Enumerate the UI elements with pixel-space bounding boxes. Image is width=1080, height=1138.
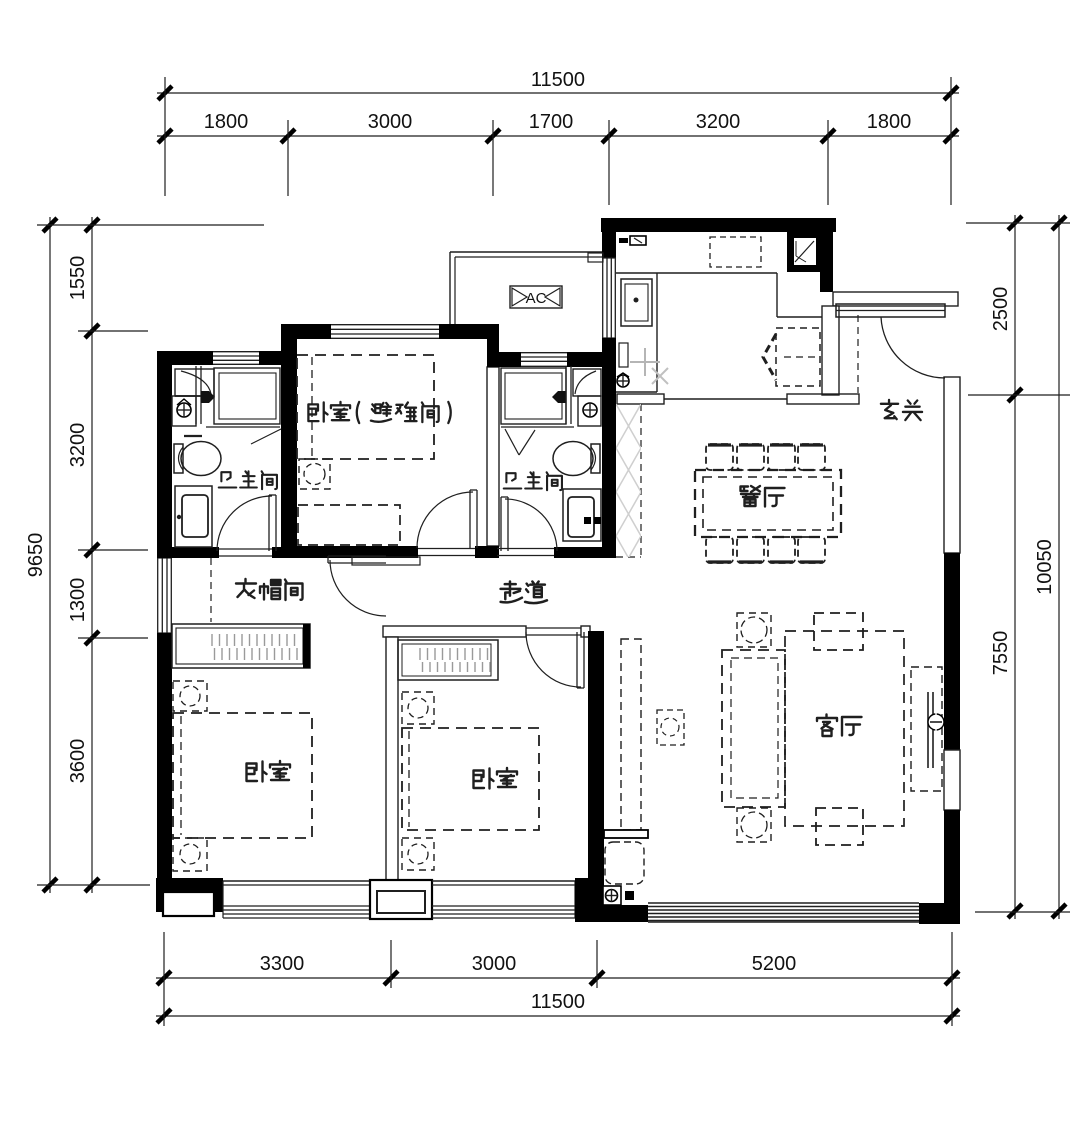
svg-text:3200: 3200 — [67, 423, 89, 468]
svg-text:5200: 5200 — [752, 953, 797, 975]
svg-text:3300: 3300 — [260, 953, 305, 975]
svg-text:11500: 11500 — [531, 991, 585, 1013]
svg-text:3000: 3000 — [472, 953, 517, 975]
svg-text:3000: 3000 — [368, 111, 413, 133]
svg-text:1700: 1700 — [529, 111, 574, 133]
svg-text:AC: AC — [526, 290, 547, 307]
svg-text:10050: 10050 — [1034, 539, 1056, 595]
svg-text:3600: 3600 — [67, 739, 89, 784]
svg-text:1550: 1550 — [67, 256, 89, 301]
svg-text:1800: 1800 — [867, 111, 912, 133]
svg-text:1300: 1300 — [67, 578, 89, 623]
svg-text:3200: 3200 — [696, 111, 741, 133]
svg-text:2500: 2500 — [990, 287, 1012, 332]
svg-text:7550: 7550 — [990, 631, 1012, 676]
svg-text:11500: 11500 — [531, 69, 585, 91]
svg-text:9650: 9650 — [25, 533, 47, 578]
svg-text:1800: 1800 — [204, 111, 249, 133]
